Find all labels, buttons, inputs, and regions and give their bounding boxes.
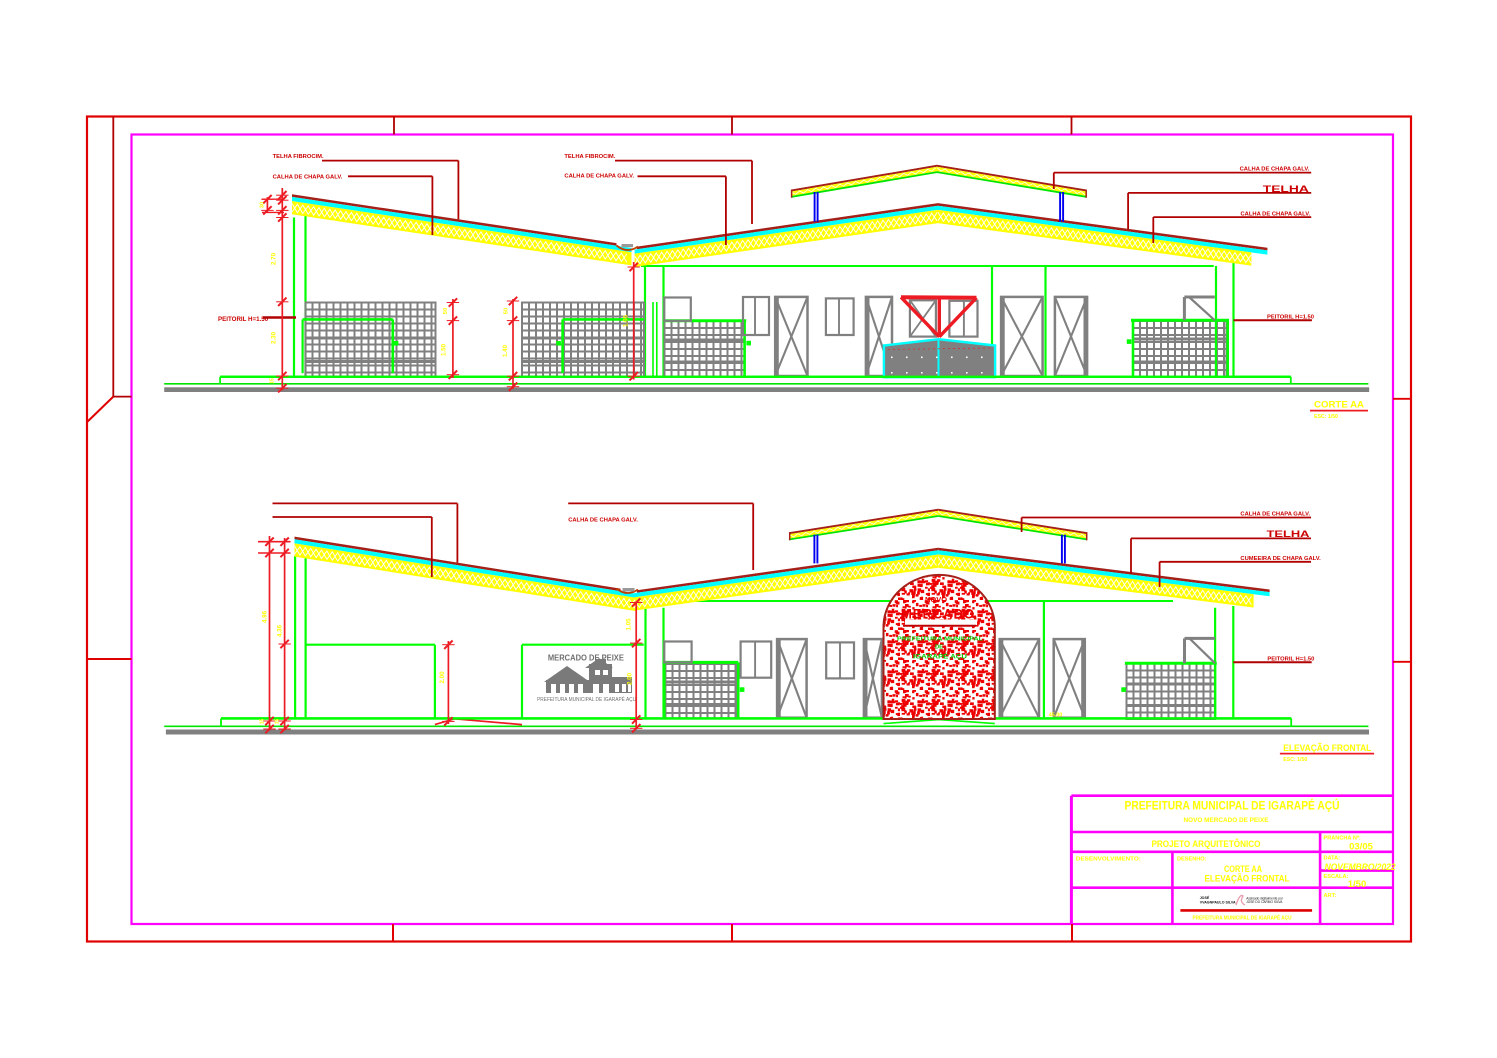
svg-text:30: 30: [259, 202, 265, 208]
svg-text:CORTE AA: CORTE AA: [1224, 864, 1262, 874]
svg-text:MERCADO: MERCADO: [901, 606, 975, 622]
svg-text:1/50: 1/50: [1348, 879, 1367, 890]
svg-text:TELHA FIBROCIM.: TELHA FIBROCIM.: [564, 154, 615, 160]
svg-text:ESC: 1/50: ESC: 1/50: [1283, 757, 1307, 763]
svg-text:CALHA DE CHAPA GALV.: CALHA DE CHAPA GALV.: [1240, 167, 1310, 173]
svg-text:PREFEITURA MUNICIPAL DE IGARAP: PREFEITURA MUNICIPAL DE IGARAPÉ AÇÚ: [1125, 800, 1340, 813]
svg-text:IGARAPÉ AÇU: IGARAPÉ AÇU: [913, 652, 967, 661]
svg-text:NOVO: NOVO: [925, 595, 947, 604]
svg-text:1.40: 1.40: [502, 344, 509, 357]
svg-text:15: 15: [260, 719, 266, 725]
svg-text:2.00: 2.00: [626, 672, 633, 685]
svg-text:PROJETO ARQUITETÔNICO: PROJETO ARQUITETÔNICO: [1152, 838, 1261, 850]
svg-text:1.05: 1.05: [622, 314, 629, 327]
svg-text:03/05: 03/05: [1349, 842, 1373, 853]
svg-text:2.00: 2.00: [439, 671, 446, 684]
svg-text:ELEVAÇÃO FRONTAL: ELEVAÇÃO FRONTAL: [1283, 743, 1371, 753]
svg-text:PEITORIL H=1.50: PEITORIL H=1.50: [218, 316, 269, 323]
svg-text:CORTE AA: CORTE AA: [1314, 400, 1364, 410]
svg-text:VVAGNPAULO SILVA: VVAGNPAULO SILVA: [1200, 901, 1236, 905]
svg-text:NOVO MERCADO DE PEIXE: NOVO MERCADO DE PEIXE: [1184, 817, 1269, 824]
svg-text:PREFEITURA MUNICIPAL DE IGARAP: PREFEITURA MUNICIPAL DE IGARAPÉ AÇU: [1193, 914, 1292, 922]
svg-text:NOVEMBRO/2022: NOVEMBRO/2022: [1325, 862, 1397, 872]
svg-text:15: 15: [275, 719, 281, 725]
svg-text:DATA:: DATA:: [1324, 856, 1341, 862]
svg-text:CALHA DE CHAPA GALV.: CALHA DE CHAPA GALV.: [273, 175, 343, 181]
svg-text:50: 50: [504, 308, 510, 314]
svg-text:PREFEITURA MUNICIPAL: PREFEITURA MUNICIPAL: [897, 637, 984, 643]
svg-text:ART:: ART:: [1324, 893, 1337, 899]
svg-text:JOSÉ: JOSÉ: [1200, 895, 1210, 900]
svg-text:CALHA DE CHAPA GALV.: CALHA DE CHAPA GALV.: [564, 174, 634, 180]
svg-text:4.36: 4.36: [277, 624, 284, 637]
svg-text:1.05: 1.05: [626, 618, 633, 631]
svg-text:ESC: 1/50: ESC: 1/50: [1314, 414, 1338, 420]
svg-text:DE: DE: [935, 645, 943, 651]
svg-text:15: 15: [270, 378, 276, 384]
svg-text:MERCADO DE PEIXE: MERCADO DE PEIXE: [548, 653, 624, 662]
svg-text:JOSÉ DO CARMO SILVA: JOSÉ DO CARMO SILVA: [1246, 899, 1283, 904]
svg-text:2.70: 2.70: [271, 252, 278, 265]
svg-text:ELEVAÇÃO FRONTAL: ELEVAÇÃO FRONTAL: [1205, 873, 1290, 883]
svg-text:PREFEITURA MUNICIPAL DE IGARAP: PREFEITURA MUNICIPAL DE IGARAPÉ AÇU: [537, 696, 636, 703]
svg-text:4.96: 4.96: [262, 610, 269, 623]
svg-text:PRANCHA Nº:: PRANCHA Nº:: [1324, 835, 1361, 841]
svg-text:1.50: 1.50: [441, 343, 448, 356]
svg-text:50: 50: [443, 308, 449, 314]
svg-text:DESENHO:: DESENHO:: [1177, 857, 1207, 863]
svg-text:DESENVOLVIMENTO:: DESENVOLVIMENTO:: [1076, 857, 1141, 863]
svg-text:ESCALA:: ESCALA:: [1324, 874, 1349, 880]
svg-text:2.30: 2.30: [271, 331, 278, 344]
svg-text:TELHA FIBROCIM.: TELHA FIBROCIM.: [273, 154, 324, 160]
svg-text:CALHA DE CHAPA GALV.: CALHA DE CHAPA GALV.: [568, 518, 638, 524]
